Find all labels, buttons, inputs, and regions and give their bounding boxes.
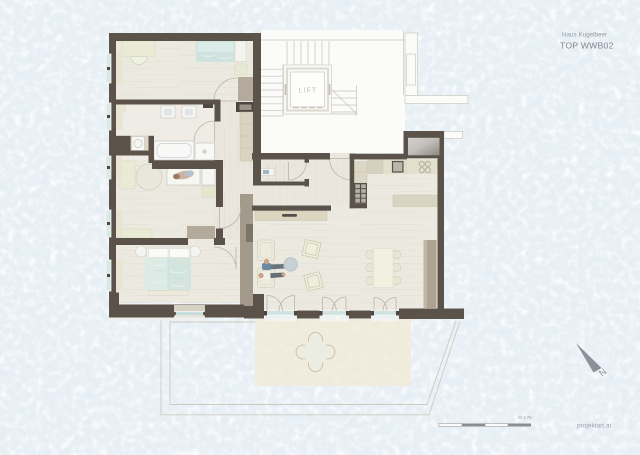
svg-text:LIFT: LIFT xyxy=(299,88,317,95)
svg-text:TOP WWB02: TOP WWB02 xyxy=(560,41,614,51)
svg-text:Haus Kugelbeer: Haus Kugelbeer xyxy=(562,32,607,39)
svg-text:projektart.at: projektart.at xyxy=(577,423,612,430)
svg-text:M 1:75: M 1:75 xyxy=(518,415,532,420)
